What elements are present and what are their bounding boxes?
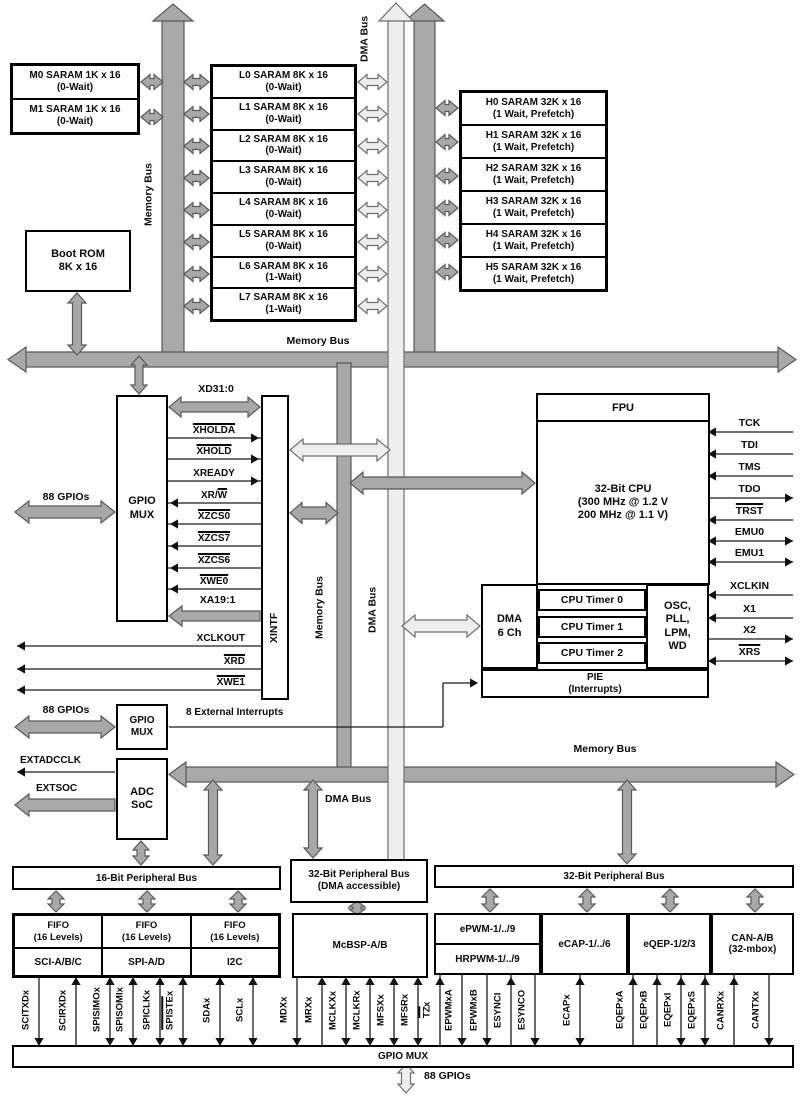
bus-end-arrow — [776, 762, 794, 787]
xintf-signal-label: XR/W — [166, 490, 262, 501]
cpu-timers-group: CPU Timer 0 CPU Timer 1 CPU Timer 2 — [538, 589, 646, 664]
memory-block-m: M1 SARAM 1K x 16 (0-Wait) — [13, 98, 137, 132]
mem-p16-arrow — [204, 780, 222, 865]
gpios-88-mid-label: 88 GPIOs — [24, 705, 108, 717]
mem-p32-arrow — [618, 780, 636, 864]
l-saram-dma-arrow — [358, 235, 387, 250]
gpios-88-upper-label: 88 GPIOs — [24, 492, 108, 504]
extsoc-label: EXTSOC — [36, 783, 100, 794]
memory-bus-horizontal-lower — [184, 767, 778, 782]
serial-peripheral-name: SCI-A/B/C — [15, 949, 101, 975]
memory-block-l: L2 SARAM 8K x 16 (0-Wait) — [213, 129, 354, 161]
fifo-cell: FIFO (16 Levels) — [15, 916, 101, 949]
m-saram-group: M0 SARAM 1K x 16 (0-Wait) M1 SARAM 1K x … — [10, 63, 140, 135]
p32-periph-arrow — [579, 889, 595, 912]
xintf-label: XINTF — [263, 572, 287, 684]
l-saram-group: L0 SARAM 8K x 16 (0-Wait) L1 SARAM 8K x … — [210, 64, 357, 322]
cpu-block: FPU 32-Bit CPU (300 MHz @ 1.2 V 200 MHz … — [536, 393, 710, 585]
xintf-signal-label: XWE0 — [166, 576, 262, 587]
ext-interrupts-label: 8 External Interrupts — [186, 707, 326, 718]
l-saram-dma-arrow — [358, 299, 387, 314]
l-saram-mem-arrow — [184, 139, 209, 154]
gpio-mux-bar: GPIO MUX — [12, 1045, 794, 1068]
l-saram-dma-arrow — [358, 107, 387, 122]
pin-arrow — [700, 977, 709, 985]
memory-bus-vertical-top — [414, 20, 435, 355]
memory-block-l: L0 SARAM 8K x 16 (0-Wait) — [213, 67, 354, 97]
l-saram-mem-arrow — [184, 267, 209, 282]
pin-arrow — [575, 977, 584, 985]
pin-label: MDXx — [276, 980, 292, 1040]
dma-bus-up-arrow — [379, 3, 413, 21]
gpio-mux-int-block: GPIO MUX — [116, 704, 168, 750]
fifo-cell: FIFO (16 Levels) — [103, 916, 189, 949]
extadcclk-label: EXTADCCLK — [20, 755, 110, 766]
serial-peripheral-name: SPI-A/D — [103, 949, 189, 975]
memory-block-l: L1 SARAM 8K x 16 (0-Wait) — [213, 97, 354, 129]
jtag-pin-label: XCLKIN — [706, 581, 793, 593]
pin-label: ESYNCI — [490, 980, 506, 1040]
p32-periph-arrow — [747, 889, 763, 912]
pin-label: SPISOMIx — [112, 980, 128, 1040]
pin-arrow — [248, 977, 257, 985]
pin-arrow — [128, 977, 137, 985]
fifo-cell: FIFO (16 Levels) — [192, 916, 278, 949]
m0-mem-arrow — [141, 75, 163, 90]
jtag-pin-label: EMU0 — [706, 527, 793, 539]
memory-block-h: H4 SARAM 32K x 16 (1 Wait, Prefetch) — [462, 223, 605, 256]
pin-label: MRXx — [301, 980, 317, 1040]
l-saram-dma-arrow — [358, 139, 387, 154]
memory-block-l: L7 SARAM 8K x 16 (1-Wait) — [213, 287, 354, 319]
pin-label: SPICLKx — [139, 980, 155, 1040]
extsoc-arrow — [15, 794, 115, 816]
xintf-signal-label: XHOLDA — [166, 425, 262, 436]
adc-soc-block: ADC SoC — [116, 758, 168, 840]
xintf-signal-label: XZCS0 — [166, 511, 262, 522]
gpio-88-mid-arrow — [15, 716, 115, 738]
epwm-block: ePWM-1/../9 HRPWM-1/../9 — [434, 913, 541, 975]
pin-label: SCIRXDx — [55, 980, 71, 1040]
pin-label: TZx — [419, 980, 435, 1040]
serial-peripheral-column: FIFO (16 Levels) SCI-A/B/C — [15, 916, 101, 975]
memory-bus-upper-label: Memory Bus — [258, 336, 378, 348]
pin-label: SPISTEx — [162, 980, 178, 1040]
bus-end-arrow — [8, 347, 26, 372]
jtag-pin-label: TCK — [706, 418, 793, 430]
pin-label: MCLKXx — [325, 980, 341, 1040]
memory-block-h: H3 SARAM 32K x 16 (1 Wait, Prefetch) — [462, 190, 605, 223]
l-saram-mem-arrow — [184, 107, 209, 122]
dma-bus-lower-label: DMA Bus — [325, 794, 400, 806]
cpu-timer-block: CPU Timer 2 — [538, 642, 646, 664]
epwm-cell: ePWM-1/../9 — [436, 915, 539, 943]
dma-bus-vertical — [388, 20, 404, 866]
l-saram-dma-arrow — [358, 75, 387, 90]
jtag-pin-label: X2 — [706, 625, 793, 637]
serial-peripheral-column: FIFO (16 Levels) I2C — [190, 916, 278, 975]
gpio-mux-xintf-block: GPIO MUX — [116, 395, 168, 622]
memory-block-l: L4 SARAM 8K x 16 (0-Wait) — [213, 192, 354, 224]
pin-label: EQEPxA — [612, 980, 628, 1040]
l-saram-dma-arrow — [358, 171, 387, 186]
xintf-signal-label: XZCS6 — [166, 555, 262, 566]
p16-fifo-arrow — [48, 891, 64, 912]
memory-block-l: L6 SARAM 8K x 16 (1-Wait) — [213, 256, 354, 288]
pin-label: MCLKRx — [349, 980, 365, 1040]
xd-bus-label: XD31:0 — [180, 384, 252, 396]
xintf-mem-arrow — [290, 503, 338, 524]
dma-bus-top-label: DMA Bus — [358, 8, 373, 70]
pin-label: CANRXx — [713, 980, 729, 1040]
p32-periph-arrow — [482, 889, 498, 912]
l-saram-dma-arrow — [358, 203, 387, 218]
jtag-pin-label: TRST — [706, 506, 793, 518]
h-saram-mem-arrow — [436, 169, 458, 184]
cpu-timer-block: CPU Timer 1 — [538, 616, 646, 638]
pin-label: SCITXDx — [18, 980, 34, 1040]
pie-block: PIE (Interrupts) — [481, 669, 709, 698]
boot-rom-mem-arrow — [68, 293, 86, 355]
gpios-88-bottom-label: 88 GPIOs — [424, 1071, 494, 1083]
memory-bus-up-arrow — [153, 4, 193, 21]
memory-block-l: L3 SARAM 8K x 16 (0-Wait) — [213, 160, 354, 192]
pin-label: EPWMxA — [441, 980, 457, 1040]
memory-block-h: H5 SARAM 32K x 16 (1 Wait, Prefetch) — [462, 256, 605, 289]
memory-bus-lower-label: Memory Bus — [540, 744, 670, 756]
gpio-mux-mem-arrow — [131, 356, 147, 394]
memory-bus-mid-label: Memory Bus — [313, 566, 328, 648]
pin-label: EPWMxB — [466, 980, 482, 1040]
gpio-88-upper-arrow — [15, 501, 115, 523]
memory-block-h: H2 SARAM 32K x 16 (1 Wait, Prefetch) — [462, 157, 605, 190]
fpu-block: FPU — [538, 395, 708, 422]
l-saram-mem-arrow — [184, 299, 209, 314]
l-saram-mem-arrow — [184, 203, 209, 218]
h-saram-mem-arrow — [436, 201, 458, 216]
eqep-block: eQEP-1/2/3 — [628, 913, 711, 975]
jtag-pin-label: XRS — [706, 647, 793, 659]
pin-label: ECAPx — [559, 980, 575, 1040]
memory-bus-vertical-left — [162, 20, 184, 353]
memory-block-h: H1 SARAM 32K x 16 (1 Wait, Prefetch) — [462, 124, 605, 157]
l-saram-dma-arrow — [358, 267, 387, 282]
memory-bus-vertical-mid — [337, 363, 351, 769]
xintf-out-arrow — [17, 641, 25, 650]
jtag-pin-label: EMU1 — [706, 548, 793, 560]
peripheral-bus-32-bar: 32-Bit Peripheral Bus — [434, 865, 794, 888]
serial-peripheral-name: I2C — [192, 949, 278, 975]
mem-p32dma-arrow — [304, 780, 322, 858]
xd-bus-arrow — [169, 397, 260, 417]
hrpwm-cell: HRPWM-1/../9 — [436, 943, 539, 973]
adc-p16-arrow — [133, 841, 149, 865]
dma-bus-mid-label: DMA Bus — [366, 577, 381, 643]
m1-mem-arrow — [141, 110, 163, 125]
memory-block-m: M0 SARAM 1K x 16 (0-Wait) — [13, 66, 137, 98]
h-saram-mem-arrow — [436, 135, 458, 150]
pin-label: EQEPxB — [636, 980, 652, 1040]
jtag-pin-label: TMS — [706, 462, 793, 474]
h-saram-mem-arrow — [436, 265, 458, 280]
h-saram-mem-arrow — [436, 233, 458, 248]
pin-label: MFSRx — [397, 980, 413, 1040]
mem-cpu-arrow — [350, 472, 535, 494]
h-saram-mem-arrow — [436, 101, 458, 116]
ext-int-arrow — [470, 678, 478, 687]
xintf-out-label: XCLKOUT — [148, 633, 245, 644]
pin-arrow — [729, 977, 738, 985]
pin-label: EQEPxI — [660, 980, 676, 1040]
pin-label: SCLx — [232, 980, 248, 1040]
p16-fifo-arrow — [230, 891, 246, 912]
jtag-pin-label: X1 — [706, 604, 793, 616]
can-block: CAN-A/B (32-mbox) — [711, 913, 794, 975]
osc-pll-block: OSC, PLL, LPM, WD — [646, 584, 709, 669]
dma-bus-dma-arrow — [402, 615, 480, 637]
boot-rom-block: Boot ROM 8K x 16 — [25, 230, 131, 292]
jtag-pin-label: TDO — [706, 484, 793, 496]
xintf-signal-label: XREADY — [166, 468, 262, 479]
pin-label: ESYNCO — [514, 980, 530, 1040]
pin-label: MFSXx — [373, 980, 389, 1040]
xintf-signal-label: XHOLD — [166, 446, 262, 457]
l-saram-mem-arrow — [184, 171, 209, 186]
xa-bus-arrow — [169, 606, 260, 626]
h-saram-group: H0 SARAM 32K x 16 (1 Wait, Prefetch) H1 … — [459, 90, 608, 292]
xintf-signal-label: XZCS7 — [166, 533, 262, 544]
l-saram-mem-arrow — [184, 75, 209, 90]
xintf-out-arrow — [17, 685, 25, 694]
gpio-88-bottom-arrow — [398, 1064, 414, 1093]
mcbsp-block: McBSP-A/B — [292, 913, 428, 978]
jtag-pin-label: TDI — [706, 440, 793, 452]
pin-label: CANTXx — [748, 980, 764, 1040]
p32-periph-arrow — [662, 889, 678, 912]
pin-arrow — [215, 977, 224, 985]
memory-block-l: L5 SARAM 8K x 16 (0-Wait) — [213, 224, 354, 256]
pin-arrow — [71, 977, 80, 985]
soc-block-diagram: M0 SARAM 1K x 16 (0-Wait) M1 SARAM 1K x … — [0, 0, 803, 1100]
xa-bus-label: XA19:1 — [185, 595, 250, 607]
pin-label: EQEPxS — [684, 980, 700, 1040]
peripheral-bus-16-bar: 16-Bit Peripheral Bus — [12, 866, 281, 890]
cpu-timer-block: CPU Timer 0 — [538, 589, 646, 611]
extadcclk-arrow — [17, 767, 25, 776]
serial-peripherals-group: FIFO (16 Levels) SCI-A/B/C FIFO (16 Leve… — [12, 913, 281, 978]
l-saram-mem-arrow — [184, 235, 209, 250]
xintf-out-arrow — [17, 664, 25, 673]
pin-label: SPISIMOx — [89, 980, 105, 1040]
memory-bus-left-label: Memory Bus — [142, 148, 157, 240]
xintf-out-label: XWE1 — [148, 677, 245, 688]
pin-arrow — [178, 977, 187, 985]
bus-end-arrow — [169, 762, 186, 787]
serial-peripheral-column: FIFO (16 Levels) SPI-A/D — [101, 916, 189, 975]
memory-block-h: H0 SARAM 32K x 16 (1 Wait, Prefetch) — [462, 93, 605, 124]
pin-label: SDAx — [199, 980, 215, 1040]
cpu-core-label: 32-Bit CPU (300 MHz @ 1.2 V 200 MHz @ 1.… — [538, 422, 708, 583]
bus-end-arrow — [778, 347, 796, 372]
p16-fifo-arrow — [139, 891, 155, 912]
dma-block: DMA 6 Ch — [481, 584, 538, 669]
ecap-block: eCAP-1/../6 — [541, 913, 628, 975]
peripheral-bus-32dma-bar: 32-Bit Peripheral Bus (DMA accessible) — [290, 859, 428, 903]
xintf-out-label: XRD — [148, 656, 245, 667]
